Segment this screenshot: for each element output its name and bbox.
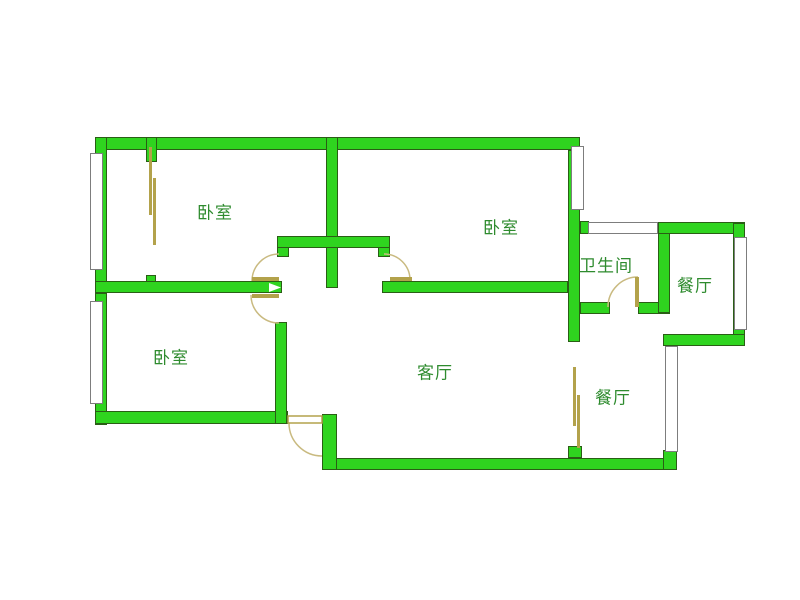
room-label-bathroom: 卫生间 [579, 252, 633, 277]
window-lower-right [665, 346, 678, 452]
wall-outer-bottom [330, 458, 677, 470]
wall-dining-top [658, 222, 745, 234]
wall-bedroom1-bottom [95, 411, 288, 424]
room-label-bedroom-top-left: 卧室 [197, 199, 233, 224]
sliding-door-line-1 [573, 367, 576, 426]
room-label-bedroom-bottom-left: 卧室 [153, 344, 189, 369]
window-bedroom2-right [571, 146, 584, 210]
closet-line-1 [149, 147, 152, 215]
wall-bedroom1-right [275, 322, 287, 424]
closet-line-2 [153, 178, 156, 245]
room-label-dining-lower: 餐厅 [595, 384, 631, 409]
wall-lower-right-corner [663, 450, 677, 470]
sliding-door-line-2 [577, 395, 580, 448]
wall-niche-stub-left [277, 247, 289, 257]
wall-niche-stub-right [378, 247, 390, 257]
wall-central-divider [326, 137, 338, 288]
door-arc-bedroom1 [252, 254, 279, 281]
wall-bath-bottom-left [580, 302, 610, 314]
door-arc-bedroom3 [251, 295, 279, 323]
door-arc-bedroom2 [384, 254, 410, 280]
wall-bedroom2-bottom [382, 281, 568, 293]
room-label-living-room: 客厅 [417, 359, 453, 384]
wall-entry-step [322, 414, 337, 470]
window-bathroom-top [588, 222, 658, 234]
wall-divider-cap [146, 275, 156, 282]
floorplan-canvas: 卧室 卧室 卫生间 餐厅 卧室 客厅 餐厅 [0, 0, 800, 600]
door-swings-layer [0, 0, 800, 600]
door-leaf-entry [288, 416, 322, 423]
window-left-lower [90, 301, 103, 404]
window-dining-right [734, 237, 747, 330]
wall-dining-bottom [663, 334, 745, 346]
wall-niche-back [277, 236, 390, 248]
wall-bedrooms-divider [95, 281, 282, 293]
door-arc-entry [289, 423, 322, 456]
room-label-bedroom-top-right: 卧室 [483, 214, 519, 239]
door-arc-bathroom [608, 277, 638, 307]
window-left-upper [90, 153, 103, 270]
room-label-dining-upper: 餐厅 [677, 272, 713, 297]
wall-bath-dining-divider [658, 223, 670, 313]
